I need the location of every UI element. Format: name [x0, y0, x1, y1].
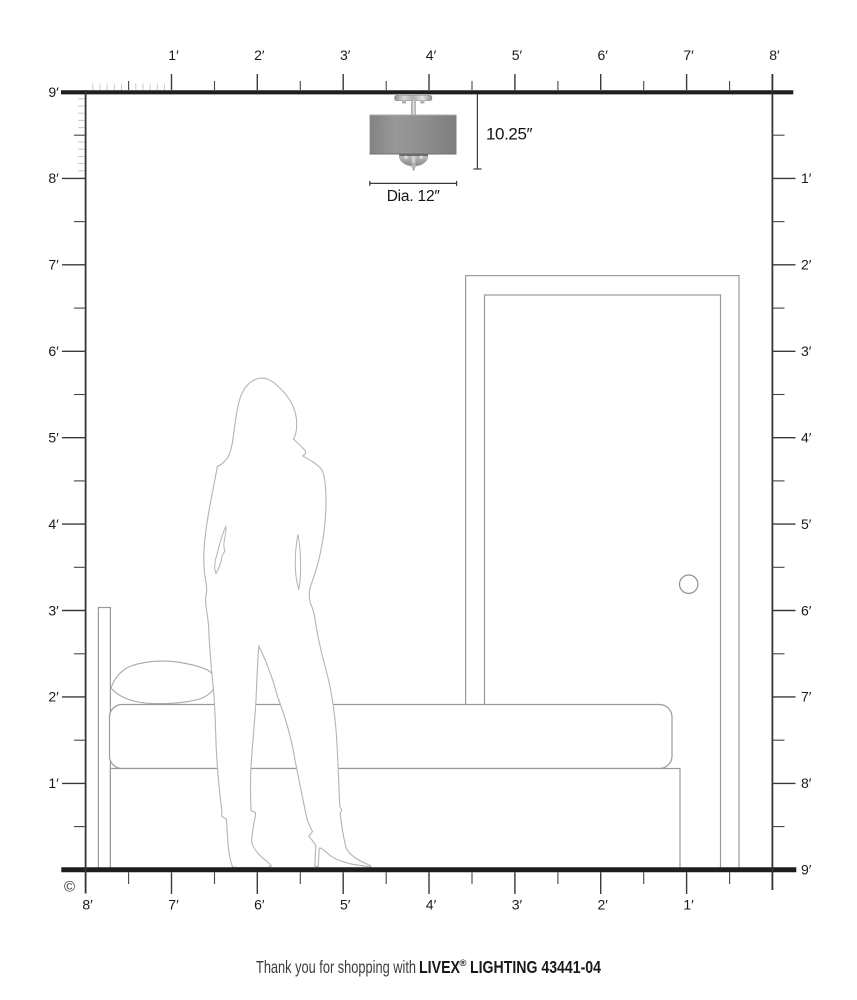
svg-text:8′: 8′	[769, 47, 780, 63]
svg-text:6′: 6′	[48, 343, 59, 359]
svg-text:5′: 5′	[512, 47, 523, 63]
svg-text:3′: 3′	[340, 47, 351, 63]
svg-text:9′: 9′	[801, 862, 812, 878]
svg-text:2′: 2′	[48, 689, 59, 705]
svg-text:4′: 4′	[426, 47, 437, 63]
svg-text:1′: 1′	[683, 897, 694, 913]
svg-text:5′: 5′	[340, 897, 351, 913]
svg-text:8′: 8′	[801, 775, 812, 791]
svg-text:®: ®	[460, 958, 467, 969]
svg-text:4′: 4′	[801, 430, 812, 446]
svg-text:2′: 2′	[254, 47, 265, 63]
svg-text:9′: 9′	[48, 84, 59, 100]
svg-text:1′: 1′	[48, 775, 59, 791]
svg-text:3′: 3′	[512, 897, 523, 913]
svg-text:7′: 7′	[48, 257, 59, 273]
svg-text:3′: 3′	[801, 343, 812, 359]
svg-text:3′: 3′	[48, 602, 59, 618]
svg-text:LIVEX: LIVEX	[419, 957, 460, 977]
svg-text:1′: 1′	[168, 47, 179, 63]
svg-text:7′: 7′	[801, 689, 812, 705]
svg-text:7′: 7′	[168, 897, 179, 913]
svg-text:5′: 5′	[801, 516, 812, 532]
svg-text:4′: 4′	[48, 516, 59, 532]
svg-text:6′: 6′	[801, 602, 812, 618]
svg-text:8′: 8′	[82, 897, 93, 913]
svg-text:6′: 6′	[597, 47, 608, 63]
svg-text:5′: 5′	[48, 430, 59, 446]
svg-text:1′: 1′	[801, 170, 812, 186]
svg-text:©: ©	[64, 879, 75, 896]
svg-text:Dia. 12″: Dia. 12″	[387, 188, 441, 205]
svg-text:8′: 8′	[48, 170, 59, 186]
svg-text:2′: 2′	[801, 257, 812, 273]
svg-text:7′: 7′	[683, 47, 694, 63]
svg-text:6′: 6′	[254, 897, 265, 913]
svg-text:2′: 2′	[597, 897, 608, 913]
svg-text:4′: 4′	[426, 897, 437, 913]
svg-text:LIGHTING 43441-04: LIGHTING 43441-04	[470, 957, 601, 977]
svg-text:Thank you for shopping with: Thank you for shopping with	[256, 957, 416, 977]
svg-text:10.25″: 10.25″	[486, 125, 533, 144]
